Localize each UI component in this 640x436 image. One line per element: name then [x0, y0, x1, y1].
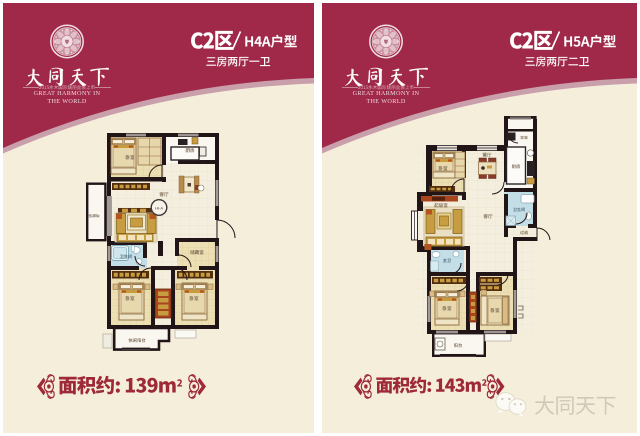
svg-text:GREAT HARMONY IN: GREAT HARMONY IN	[34, 90, 101, 97]
svg-text:GREAT HARMONY IN: GREAT HARMONY IN	[353, 90, 420, 97]
svg-text:THE WORLD: THE WORLD	[47, 98, 86, 105]
svg-text:THE WORLD: THE WORLD	[366, 98, 405, 105]
svg-text:HI-A: HI-A	[155, 206, 163, 211]
